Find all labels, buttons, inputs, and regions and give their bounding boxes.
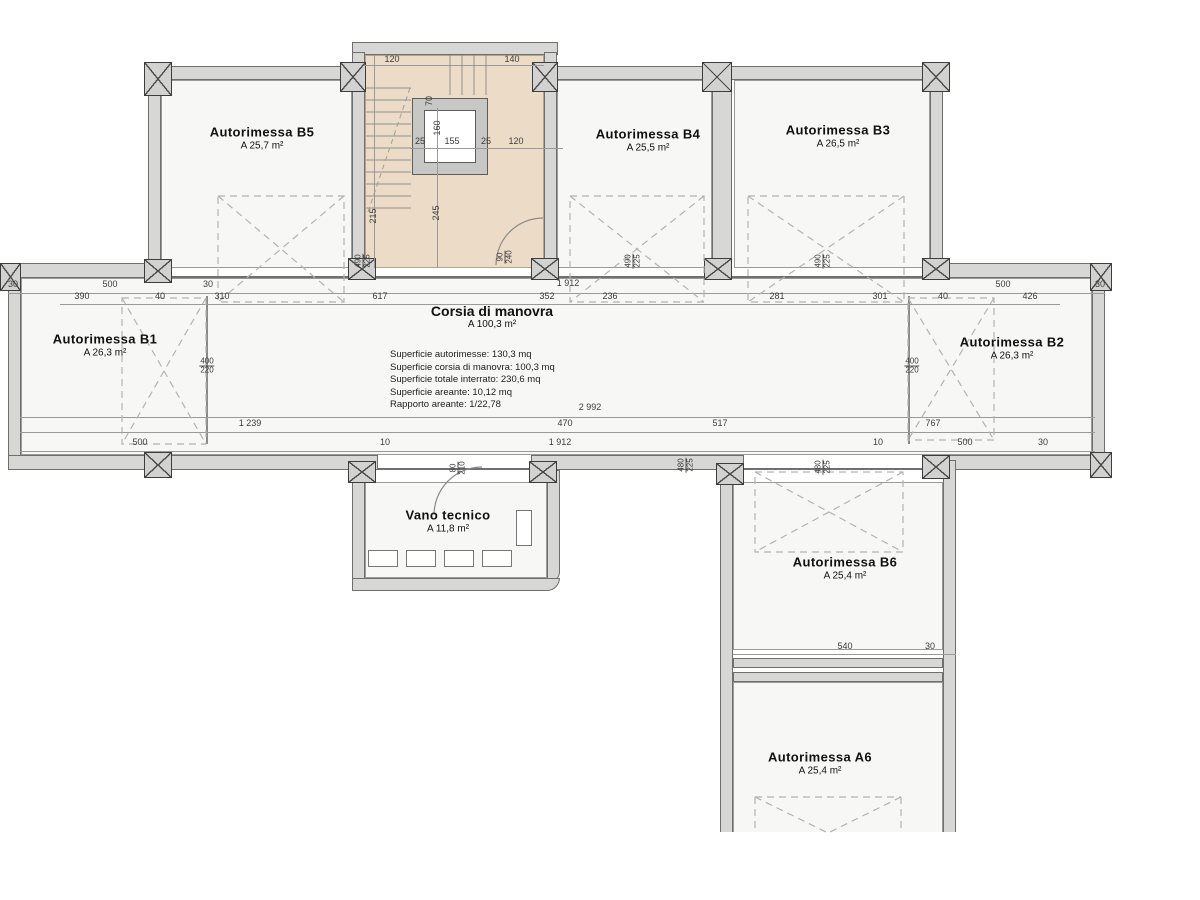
dimension-label: 426 xyxy=(1022,291,1037,301)
room-label-b4: Autorimessa B4A 25,5 m² xyxy=(596,127,701,154)
dimension-label: 310 xyxy=(214,291,229,301)
door-dimension-label: 480225 xyxy=(678,457,695,472)
parking-marker-a6 xyxy=(755,797,901,833)
room-area: A 25,5 m² xyxy=(596,143,701,154)
door-dimension-label: 480225 xyxy=(815,459,832,474)
dimension-value: 225 xyxy=(823,460,832,473)
dimension-label: 236 xyxy=(602,291,617,301)
dimension-label: 30 xyxy=(203,279,213,289)
dimension-label: 500 xyxy=(102,279,117,289)
room-area: A 25,7 m² xyxy=(210,141,315,152)
dimension-label: 25 xyxy=(415,136,425,146)
room-name: Autorimessa B2 xyxy=(960,335,1065,350)
room-name: Autorimessa B4 xyxy=(596,127,701,142)
room-area: A 11,8 m² xyxy=(406,524,491,535)
stair-treads xyxy=(366,55,486,208)
door-dimension-label: 490225 xyxy=(355,253,372,268)
room-area: A 26,3 m² xyxy=(960,351,1065,362)
dimension-label: 70 xyxy=(424,96,434,106)
dimension-label: 500 xyxy=(995,279,1010,289)
dimension-label: 215 xyxy=(368,208,378,223)
dimension-label: 120 xyxy=(508,136,523,146)
dimension-label: 155 xyxy=(444,136,459,146)
dimension-value: 220 xyxy=(200,366,213,375)
room-label-b1: Autorimessa B1A 26,3 m² xyxy=(53,332,158,359)
door-dimension-label: 490225 xyxy=(625,253,642,268)
stair-walkline xyxy=(368,88,410,212)
dimension-label: 30 xyxy=(1095,279,1105,289)
dimension-label: 352 xyxy=(539,291,554,301)
door-dimension-label: 80210 xyxy=(450,461,467,474)
dimension-label: 767 xyxy=(925,418,940,428)
door-dimension-label: 400220 xyxy=(199,358,214,375)
corridor-name: Corsia di manovra xyxy=(431,303,553,319)
dimension-label: 540 xyxy=(837,641,852,651)
dimension-label: 500 xyxy=(957,437,972,447)
door-dimension-label: 400220 xyxy=(904,358,919,375)
dimension-value: 220 xyxy=(905,366,918,375)
dimension-value: 225 xyxy=(633,254,642,267)
dimension-label: 281 xyxy=(769,291,784,301)
dimension-label: 301 xyxy=(872,291,887,301)
parking-marker-b3 xyxy=(748,196,904,302)
dimension-label: 500 xyxy=(132,437,147,447)
dimension-value: 225 xyxy=(363,254,372,267)
room-label-b5: Autorimessa B5A 25,7 m² xyxy=(210,125,315,152)
dimension-label: 140 xyxy=(504,54,519,64)
room-area: A 25,4 m² xyxy=(793,571,898,582)
corridor-area: A 100,3 m² xyxy=(431,319,553,330)
dimension-label: 1 912 xyxy=(557,278,580,288)
dimension-value: 210 xyxy=(458,461,467,474)
dimension-label: 25 xyxy=(481,136,491,146)
room-name: Autorimessa B1 xyxy=(53,332,158,347)
room-name: Vano tecnico xyxy=(406,508,491,523)
dimension-label: 245 xyxy=(431,205,441,220)
parking-marker-b2 xyxy=(908,298,994,440)
dimension-label: 1 239 xyxy=(239,418,262,428)
dimension-value: 240 xyxy=(505,250,514,263)
dimension-label: 30 xyxy=(925,641,935,651)
surface-info-line: Superficie totale interrato: 230,6 mq xyxy=(390,374,555,387)
dimension-label: 30 xyxy=(1038,437,1048,447)
dimension-label: 617 xyxy=(372,291,387,301)
room-area: A 25,4 m² xyxy=(768,766,872,777)
room-label-vano: Vano tecnicoA 11,8 m² xyxy=(406,508,491,535)
dimension-value: 225 xyxy=(823,254,832,267)
room-label-a6: Autorimessa A6A 25,4 m² xyxy=(768,750,872,777)
door-dimension-label: 90240 xyxy=(497,250,514,263)
room-name: Autorimessa A6 xyxy=(768,750,872,765)
surface-info-line: Superficie areante: 10,12 mq xyxy=(390,387,555,400)
surface-info-line: Superficie autorimesse: 130,3 mq xyxy=(390,349,555,362)
dimension-label: 1 912 xyxy=(549,437,572,447)
door-dimension-label: 490225 xyxy=(815,253,832,268)
surface-info-line: Superficie corsia di manovra: 100,3 mq xyxy=(390,362,555,375)
parking-marker-b5 xyxy=(218,196,344,302)
dimension-label: 160 xyxy=(432,120,442,135)
surface-info-block: Superficie autorimesse: 130,3 mqSuperfic… xyxy=(390,349,555,412)
dimension-value: 225 xyxy=(686,458,695,471)
dimension-label: 10 xyxy=(873,437,883,447)
parking-marker-b6 xyxy=(755,472,903,552)
room-label-b6: Autorimessa B6A 25,4 m² xyxy=(793,555,898,582)
room-label-b2: Autorimessa B2A 26,3 m² xyxy=(960,335,1065,362)
dimension-label: 517 xyxy=(712,418,727,428)
dimension-label: 120 xyxy=(384,54,399,64)
dimension-label: 40 xyxy=(155,291,165,301)
room-area: A 26,3 m² xyxy=(53,348,158,359)
room-name: Autorimessa B3 xyxy=(786,123,891,138)
room-label-b3: Autorimessa B3A 26,5 m² xyxy=(786,123,891,150)
dimension-label: 40 xyxy=(938,291,948,301)
dimension-label: 390 xyxy=(74,291,89,301)
dimension-label: 470 xyxy=(557,418,572,428)
parking-marker-b4 xyxy=(570,196,704,302)
parking-marker-b1 xyxy=(122,298,206,444)
room-name: Autorimessa B5 xyxy=(210,125,315,140)
surface-info-line: Rapporto areante: 1/22,78 xyxy=(390,399,555,412)
dimension-label: 30 xyxy=(8,279,18,289)
room-area: A 26,5 m² xyxy=(786,139,891,150)
dimension-label: 10 xyxy=(380,437,390,447)
floor-plan: Corsia di manovra A 100,3 m² Superficie … xyxy=(0,0,1200,900)
dimension-label: 2 992 xyxy=(579,402,602,412)
room-name: Autorimessa B6 xyxy=(793,555,898,570)
corridor-label: Corsia di manovra A 100,3 m² xyxy=(431,303,553,330)
